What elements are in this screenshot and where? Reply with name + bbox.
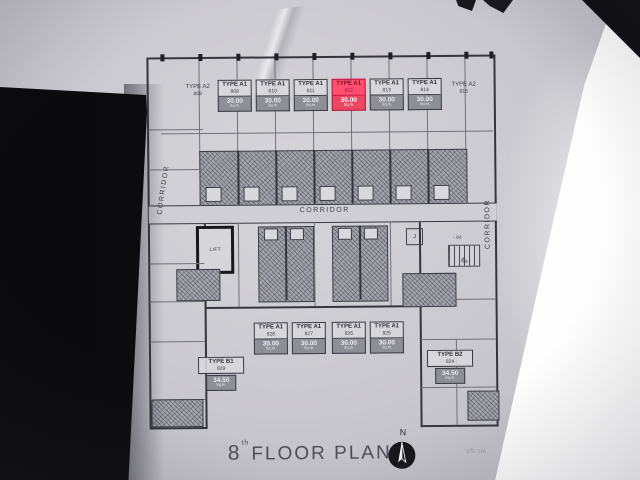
- floor-plan-photo: CORRIDOR CORRIDOR CORRIDOR LIFT J - ลง ข…: [0, 0, 640, 480]
- photo-vignette: [0, 0, 640, 480]
